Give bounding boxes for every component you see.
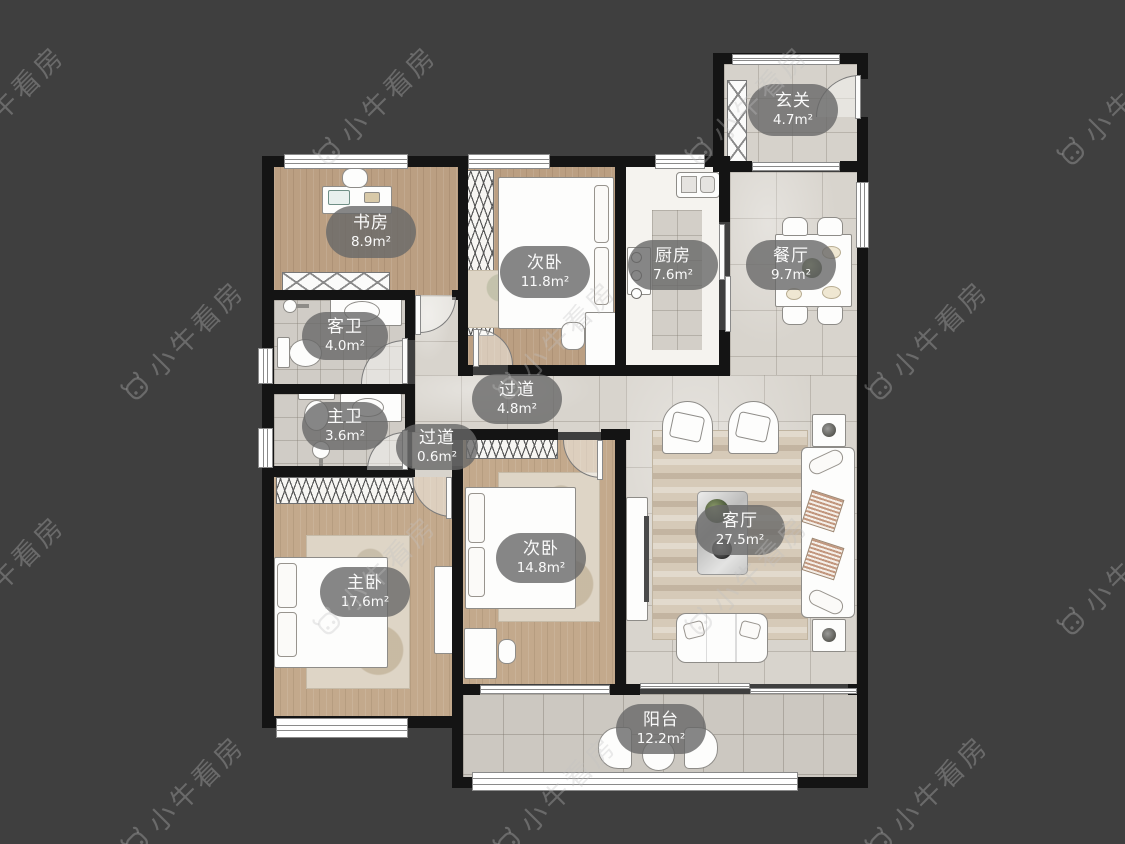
entry-cabinet bbox=[727, 80, 747, 162]
watermark: 小牛看房 bbox=[1047, 505, 1125, 646]
window bbox=[258, 348, 273, 384]
wall bbox=[458, 365, 473, 376]
wall bbox=[840, 161, 868, 172]
room-label-entry: 玄关 4.7m² bbox=[748, 84, 838, 136]
flower-decor bbox=[822, 628, 836, 642]
pillow bbox=[277, 612, 297, 657]
master-dresser bbox=[434, 566, 454, 654]
room-area: 14.8m² bbox=[517, 560, 566, 577]
room-name: 主卧 bbox=[347, 573, 383, 594]
room-area: 4.0m² bbox=[325, 338, 365, 355]
study-chair bbox=[342, 168, 368, 188]
tv bbox=[644, 516, 649, 602]
sliding-door bbox=[640, 683, 750, 689]
watermark: 小牛看房 bbox=[1047, 35, 1125, 176]
floor-plan: 玄关 4.7m² 书房 8.9m² 次卧 11.8m² 厨房 7.6m² 餐厅 … bbox=[0, 0, 1125, 844]
watermark: 小牛看房 bbox=[111, 725, 252, 844]
room-label-dining: 餐厅 9.7m² bbox=[746, 240, 836, 290]
window-sill bbox=[480, 685, 610, 694]
bedroom-top-desk bbox=[585, 312, 618, 366]
dining-chair bbox=[782, 217, 808, 236]
wall bbox=[615, 365, 730, 376]
wall bbox=[458, 156, 468, 375]
pillow bbox=[594, 185, 609, 243]
wall bbox=[262, 290, 415, 300]
watermark: 小牛看房 bbox=[0, 35, 73, 176]
shower-arm bbox=[296, 304, 309, 308]
dining-chair bbox=[817, 306, 843, 325]
watermark-text: 小牛看房 bbox=[137, 725, 252, 840]
niu-logo-icon bbox=[114, 821, 156, 844]
niu-logo-icon bbox=[1050, 601, 1092, 643]
pillow bbox=[468, 547, 485, 597]
wall bbox=[615, 156, 626, 376]
entry-door-leaf bbox=[855, 75, 861, 119]
window bbox=[732, 54, 840, 65]
room-area: 17.6m² bbox=[341, 594, 390, 611]
room-label-kitchen: 厨房 7.6m² bbox=[628, 240, 718, 290]
room-label-hallway-small: 过道 0.6m² bbox=[396, 424, 478, 470]
room-label-bedroom-bottom: 次卧 14.8m² bbox=[496, 533, 586, 583]
watermark-text: 小牛看房 bbox=[881, 725, 996, 840]
watermark: 小牛看房 bbox=[111, 270, 252, 411]
dining-chair bbox=[782, 306, 808, 325]
window bbox=[276, 718, 408, 738]
room-area: 7.6m² bbox=[653, 267, 693, 284]
bedroom-top-chair bbox=[561, 322, 585, 350]
kitchen-sliding-door bbox=[719, 224, 725, 280]
room-label-guest-bath: 客卫 4.0m² bbox=[302, 312, 388, 360]
room-area: 11.8m² bbox=[521, 274, 570, 291]
room-name: 客卫 bbox=[327, 317, 363, 338]
pillow bbox=[468, 493, 485, 543]
wall bbox=[452, 684, 480, 695]
wall bbox=[719, 330, 730, 376]
niu-logo-icon bbox=[486, 821, 528, 844]
window bbox=[468, 154, 550, 169]
monitor bbox=[328, 190, 350, 205]
window bbox=[856, 182, 869, 248]
watermark: 小牛看房 bbox=[0, 505, 73, 646]
room-label-bedroom-top: 次卧 11.8m² bbox=[500, 246, 590, 298]
wall bbox=[452, 466, 463, 716]
watermark-text: 小牛看房 bbox=[1073, 505, 1125, 620]
room-name: 厨房 bbox=[655, 246, 691, 267]
room-area: 8.9m² bbox=[351, 234, 391, 251]
room-name: 次卧 bbox=[527, 253, 563, 274]
room-name: 过道 bbox=[419, 428, 455, 449]
master-bedroom-door-leaf bbox=[446, 477, 452, 519]
room-area: 9.7m² bbox=[771, 267, 811, 284]
room-area: 12.2m² bbox=[637, 731, 686, 748]
balcony-window bbox=[472, 772, 798, 791]
window bbox=[284, 154, 408, 169]
niu-logo-icon bbox=[858, 821, 900, 844]
room-label-hallway: 过道 4.8m² bbox=[472, 374, 562, 424]
guest-bath-door-leaf bbox=[402, 338, 408, 384]
bedroom-bottom-desk bbox=[464, 628, 497, 679]
room-name: 玄关 bbox=[775, 91, 811, 112]
room-name: 阳台 bbox=[643, 710, 679, 731]
watermark-text: 小牛看房 bbox=[0, 35, 73, 150]
master-wardrobe bbox=[276, 477, 414, 504]
room-area: 4.7m² bbox=[773, 112, 813, 129]
room-name: 主卫 bbox=[327, 407, 363, 428]
burner bbox=[631, 288, 642, 299]
study-door-leaf bbox=[415, 295, 421, 335]
sliding-door bbox=[750, 688, 857, 694]
kitchen-sliding-door bbox=[725, 276, 731, 332]
room-area: 27.5m² bbox=[716, 532, 765, 549]
room-label-balcony: 阳台 12.2m² bbox=[616, 704, 706, 754]
window bbox=[655, 154, 705, 169]
wall bbox=[262, 384, 415, 394]
room-area: 0.6m² bbox=[417, 449, 457, 466]
room-name: 书房 bbox=[353, 213, 389, 234]
place-setting bbox=[822, 286, 841, 299]
flower-decor bbox=[822, 423, 836, 437]
bedroom-top-door-leaf bbox=[473, 329, 479, 367]
watermark-text: 小牛看房 bbox=[881, 270, 996, 385]
room-area: 4.8m² bbox=[497, 401, 537, 418]
room-label-study: 书房 8.9m² bbox=[326, 206, 416, 258]
watermark-text: 小牛看房 bbox=[137, 270, 252, 385]
watermark-text: 小牛看房 bbox=[1073, 35, 1125, 150]
pillow bbox=[277, 563, 297, 608]
watermark: 小牛看房 bbox=[855, 270, 996, 411]
sofa bbox=[801, 447, 855, 618]
room-name: 客厅 bbox=[722, 511, 758, 532]
wall bbox=[615, 429, 626, 695]
sink-basin-right bbox=[700, 176, 715, 193]
watermark-text: 小牛看房 bbox=[329, 35, 444, 150]
wall bbox=[405, 290, 415, 340]
wall bbox=[857, 692, 868, 788]
room-name: 过道 bbox=[499, 380, 535, 401]
sink-basin-left bbox=[681, 176, 697, 193]
room-name: 餐厅 bbox=[773, 246, 809, 267]
watermark: 小牛看房 bbox=[855, 725, 996, 844]
window bbox=[258, 428, 273, 468]
dining-chair bbox=[817, 217, 843, 236]
niu-logo-icon bbox=[114, 366, 156, 408]
room-label-master-bedroom: 主卧 17.6m² bbox=[320, 567, 410, 617]
bedroom-bottom-door-leaf bbox=[597, 440, 603, 480]
pillow bbox=[594, 247, 609, 305]
room-area: 3.6m² bbox=[325, 428, 365, 445]
entry-threshold bbox=[752, 162, 840, 171]
room-label-living: 客厅 27.5m² bbox=[695, 505, 785, 555]
watermark-text: 小牛看房 bbox=[0, 505, 73, 620]
bedroom-bottom-chair bbox=[498, 639, 516, 664]
room-label-master-bath: 主卫 3.6m² bbox=[302, 402, 388, 450]
desk-items bbox=[364, 192, 380, 203]
wall bbox=[719, 156, 730, 222]
shower-head bbox=[283, 299, 297, 313]
wall bbox=[610, 684, 640, 695]
niu-logo-icon bbox=[1050, 131, 1092, 173]
room-name: 次卧 bbox=[523, 539, 559, 560]
wall bbox=[713, 53, 724, 172]
